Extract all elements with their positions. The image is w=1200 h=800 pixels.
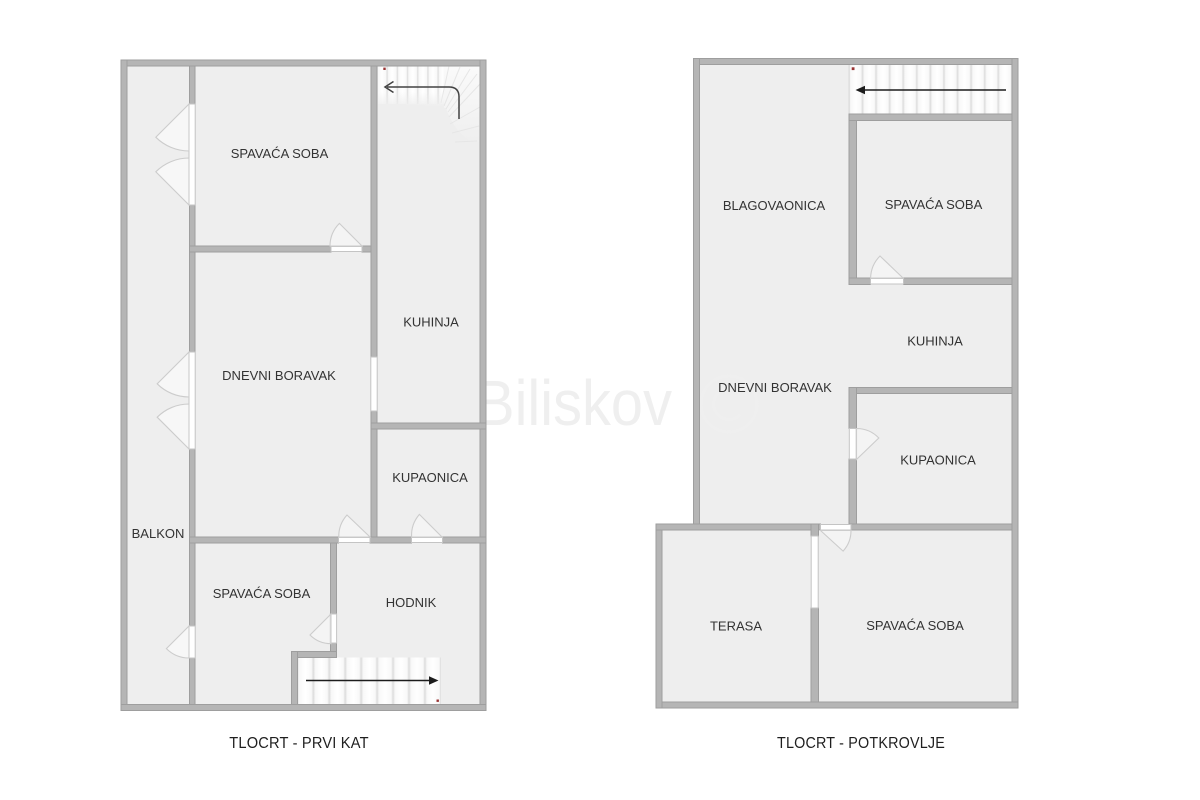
svg-text:Biliskov: Biliskov xyxy=(476,367,672,439)
svg-text:TERASA: TERASA xyxy=(710,619,762,634)
svg-text:DNEVNI BORAVAK: DNEVNI BORAVAK xyxy=(222,368,336,383)
svg-text:KUHINJA: KUHINJA xyxy=(403,315,459,330)
svg-text:TLOCRT - PRVI KAT: TLOCRT - PRVI KAT xyxy=(229,735,369,752)
svg-text:KUPAONICA: KUPAONICA xyxy=(900,453,976,468)
svg-text:SPAVAĆA SOBA: SPAVAĆA SOBA xyxy=(885,197,983,212)
svg-text:BLAGOVAONICA: BLAGOVAONICA xyxy=(723,198,826,213)
svg-text:SPAVAĆA SOBA: SPAVAĆA SOBA xyxy=(213,586,311,601)
svg-text:HODNIK: HODNIK xyxy=(386,595,437,610)
svg-text:SPAVAĆA SOBA: SPAVAĆA SOBA xyxy=(866,618,964,633)
svg-text:TLOCRT - POTKROVLJE: TLOCRT - POTKROVLJE xyxy=(777,735,945,752)
svg-text:KUHINJA: KUHINJA xyxy=(907,334,963,349)
svg-text:SPAVAĆA SOBA: SPAVAĆA SOBA xyxy=(231,146,329,161)
svg-text:DNEVNI BORAVAK: DNEVNI BORAVAK xyxy=(718,380,832,395)
svg-text:KUPAONICA: KUPAONICA xyxy=(392,470,468,485)
svg-text:BALKON: BALKON xyxy=(132,526,185,541)
